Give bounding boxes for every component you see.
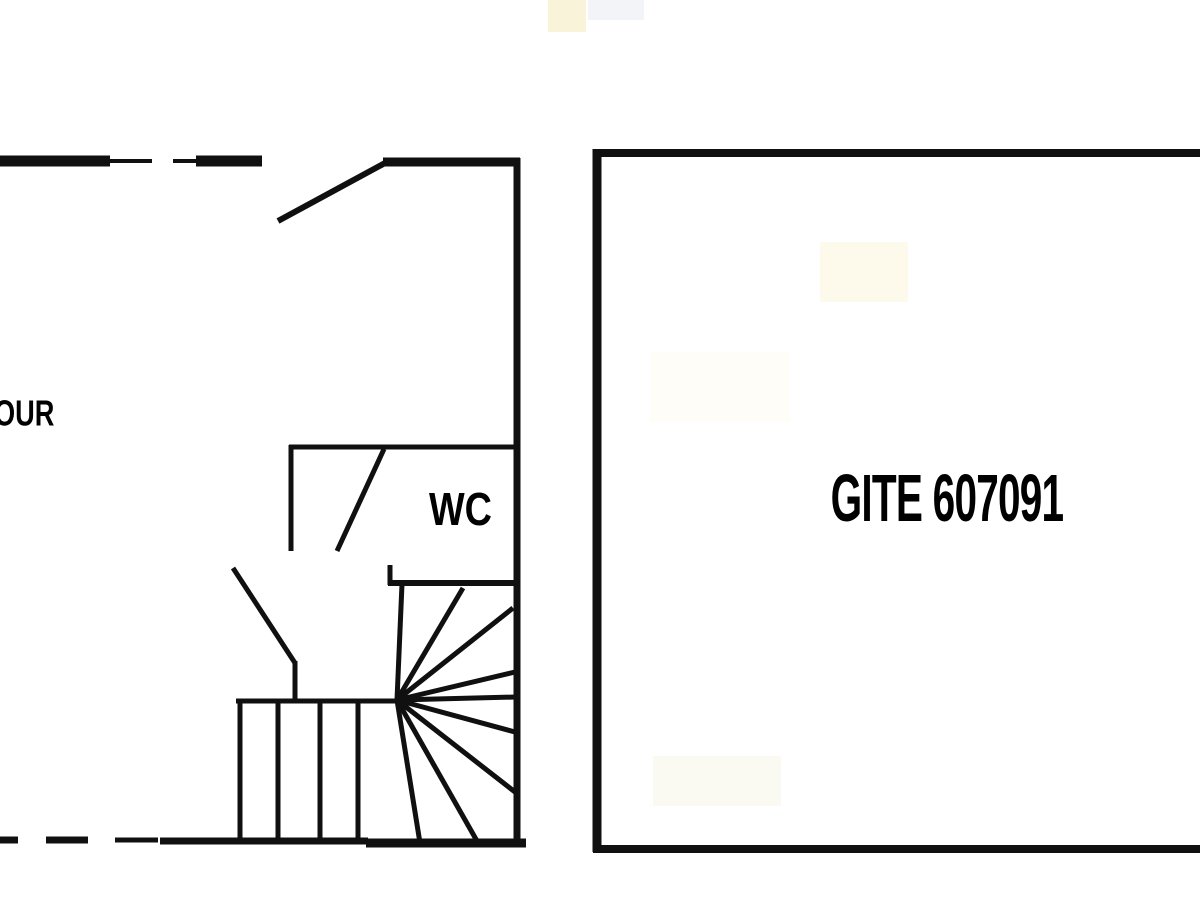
left-building-top-wall xyxy=(0,161,520,162)
left-building-bottom-wall xyxy=(0,840,526,843)
floor-plan-drawing xyxy=(0,0,1200,900)
floor-plan-page: OUR WC GITE 607091 xyxy=(0,0,1200,900)
straight-staircase xyxy=(236,699,397,841)
spiral-staircase xyxy=(397,584,516,843)
stair-balustrade xyxy=(233,568,295,703)
gite-label: GITE 607091 xyxy=(825,466,1068,533)
entry-door-swing xyxy=(278,163,385,221)
wc-label: WC xyxy=(429,486,492,532)
courtyard-label: OUR xyxy=(0,396,54,432)
